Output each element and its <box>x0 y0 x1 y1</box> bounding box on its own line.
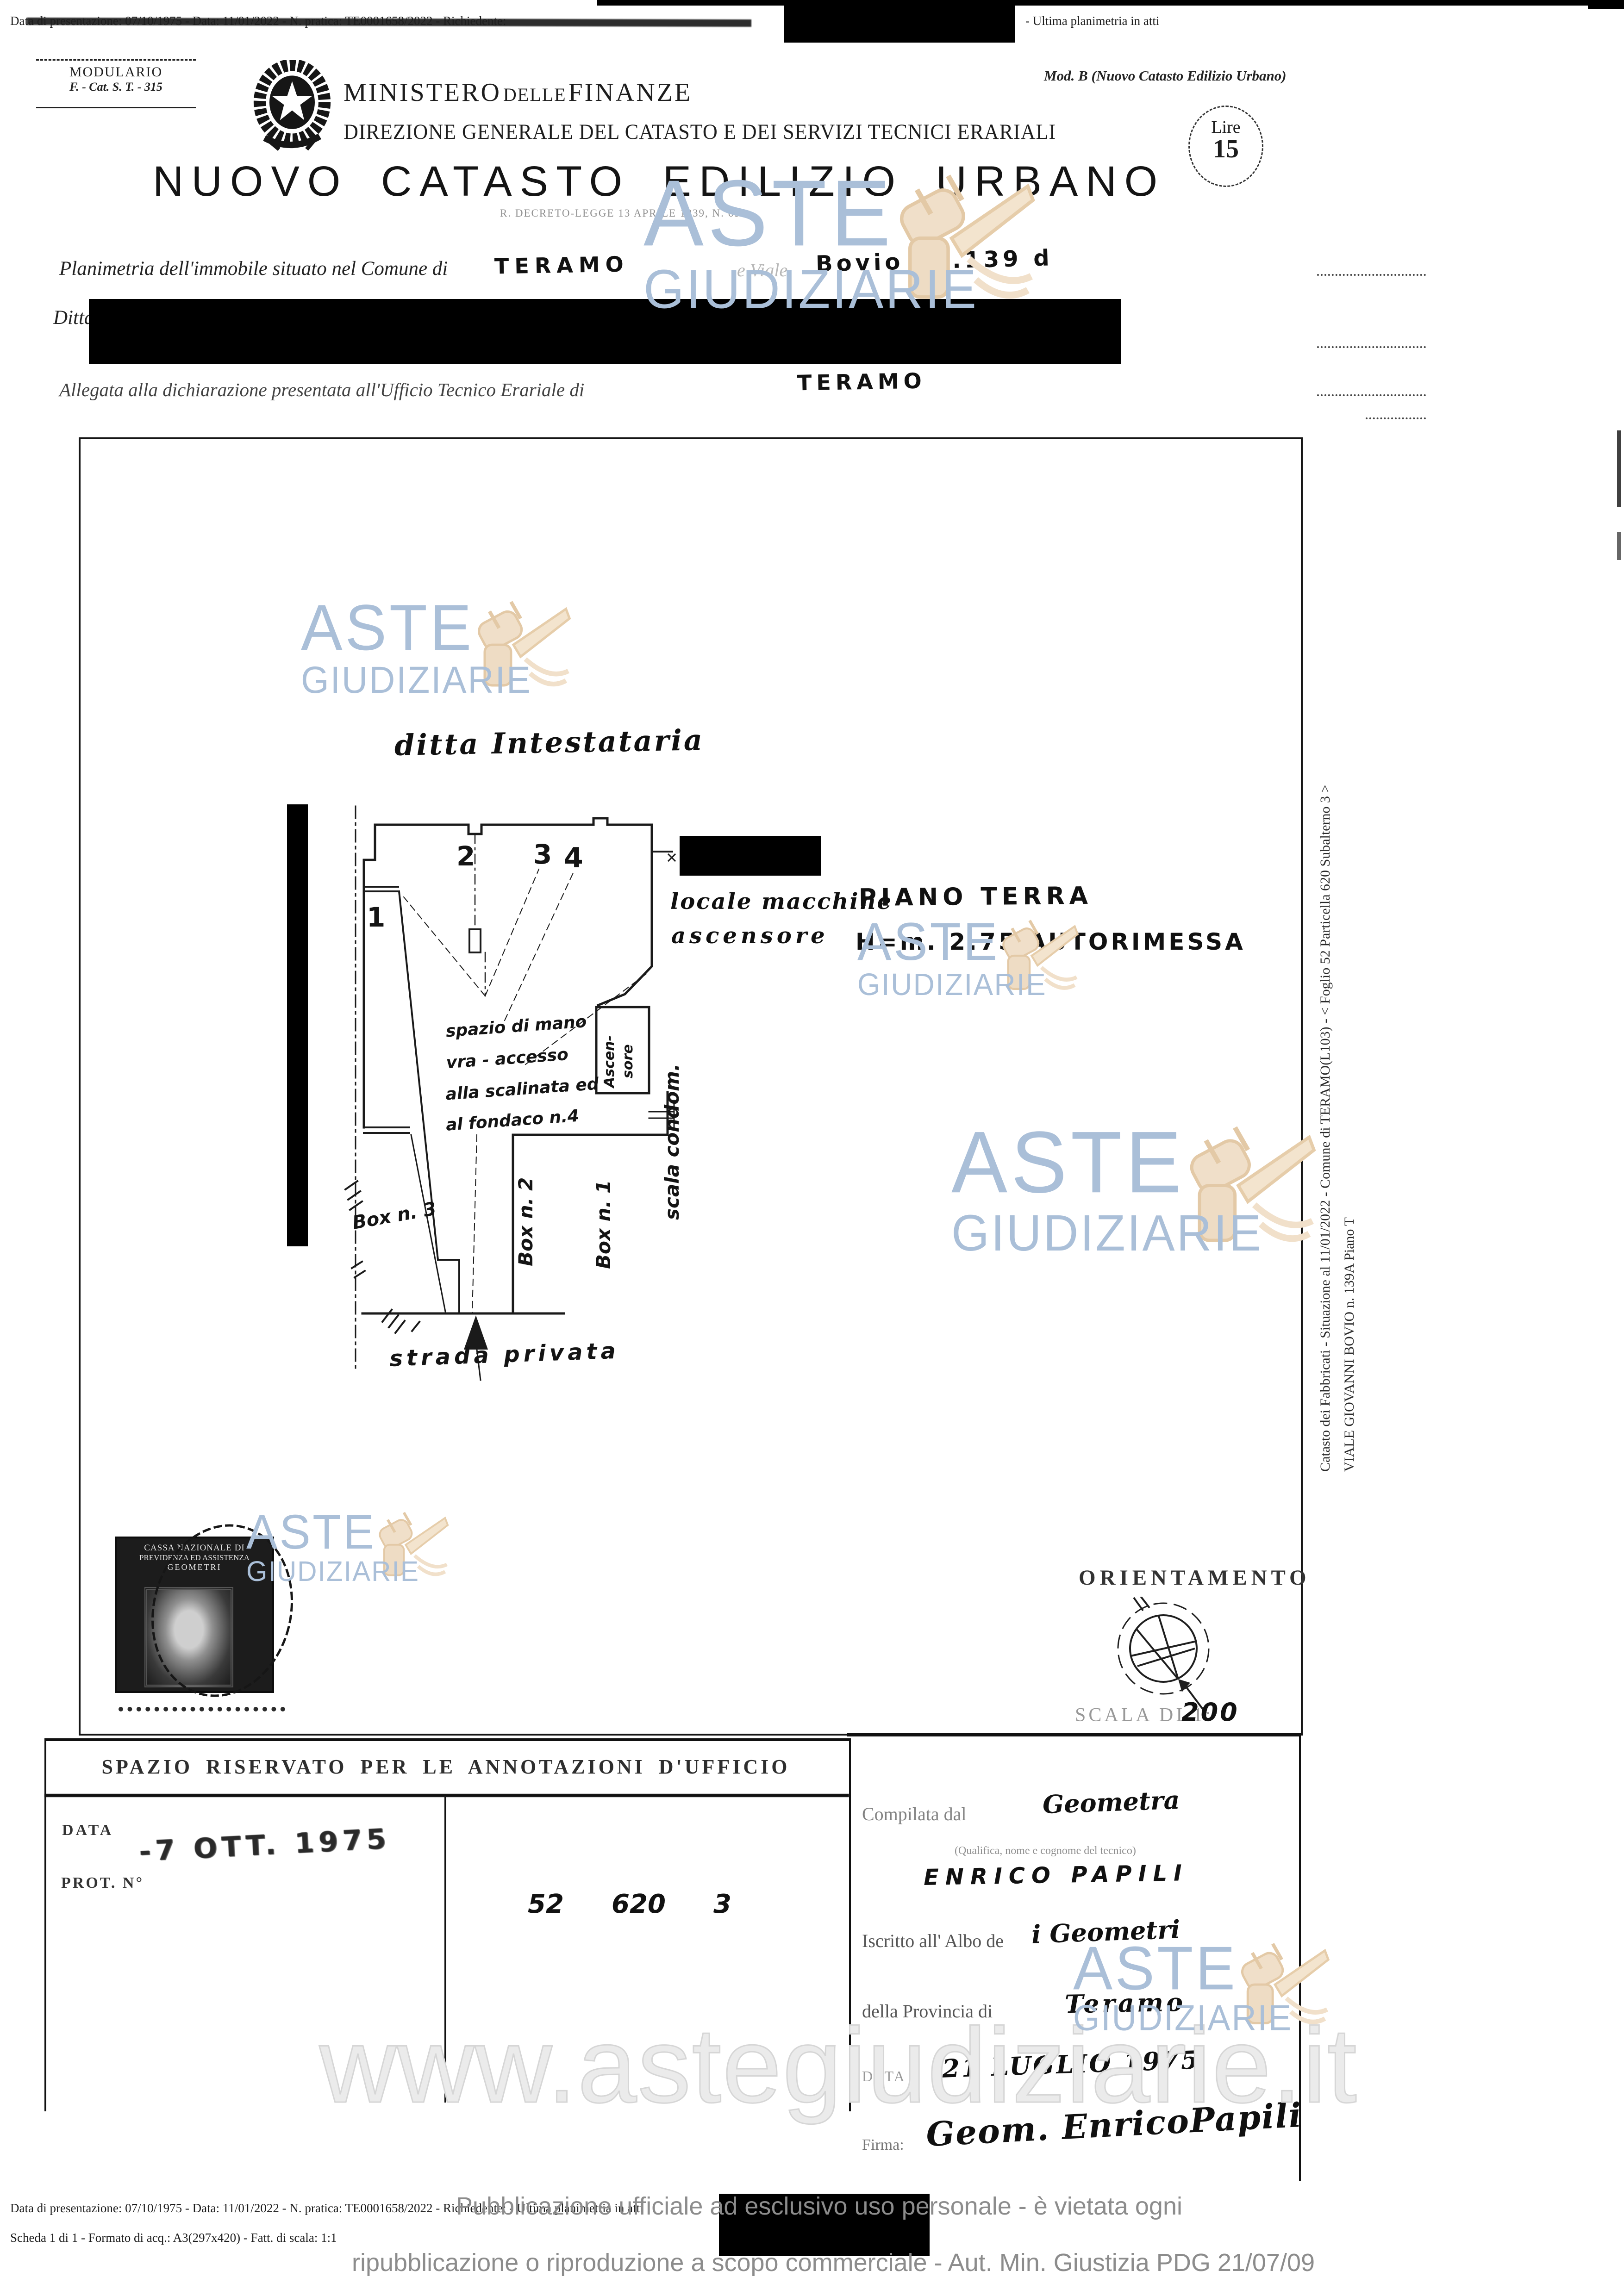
dotted-leader <box>1317 346 1426 348</box>
piano-terra-note-line2: H=m. 2.75 AUTORIMESSA <box>856 928 1246 955</box>
form-line3-value: TERAMO <box>797 368 927 396</box>
compilata-value: Geometra <box>1042 1785 1180 1819</box>
annotations-data-label: DATA <box>62 1822 113 1839</box>
top-info-prefix: Data di presentazione: 07/10/1975 - Data… <box>10 14 506 28</box>
form-line3-label: Allegata alla dichiarazione presentata a… <box>59 379 584 401</box>
footer-notice-line2: ripubblicazione o riproduzione a scopo c… <box>352 2248 1315 2277</box>
form-line1-label2: e Viale <box>737 259 787 281</box>
scan-artifact <box>597 0 1624 6</box>
modulario-box: MODULARIO F. - Cat. S. T. - 315 <box>36 59 196 108</box>
top-redaction-box <box>784 6 1015 43</box>
ascensore-box-label2: sore <box>620 1044 636 1078</box>
modulario-line1: MODULARIO <box>36 64 196 80</box>
footer-notice-line1: Pubblicazione ufficiale ad esclusivo uso… <box>456 2192 1182 2221</box>
ditta-redaction-box <box>89 299 1121 364</box>
spazio-note-line2: vra - accesso <box>445 1045 569 1072</box>
modulario-line2: F. - Cat. S. T. - 315 <box>36 80 196 94</box>
annotations-numbers: 52 620 3 <box>528 1889 731 1919</box>
scala-value: 200 <box>1181 1698 1239 1727</box>
box2-label: Box n. 2 <box>514 1177 537 1266</box>
orientamento-title: ORIENTAMENTO <box>1079 1565 1311 1590</box>
box3-label: Box n. 3 <box>351 1198 438 1234</box>
direzione-title: DIREZIONE GENERALE DEL CATASTO E DEI SER… <box>344 119 1056 144</box>
margin-address-line: VIALE GIOVANNI BOVIO n. 139A Piano T <box>1342 1213 1357 1472</box>
scan-artifact <box>1617 430 1621 507</box>
scan-artifact <box>1617 532 1621 560</box>
mod-b-label: Mod. B (Nuovo Catasto Edilizio Urbano) <box>1044 68 1287 84</box>
ascensore-box-label1: Ascen- <box>601 1035 618 1089</box>
stamp-cancellation-oval <box>139 1513 306 1708</box>
spazio-note-line1: spazio di mano <box>445 1012 587 1041</box>
annotations-prot-label: PROT. N° <box>61 1874 144 1892</box>
ministry-word3: FINANZE <box>568 78 693 107</box>
box1-label: Box n. 1 <box>592 1180 615 1269</box>
ditta-intestataria-note: ditta Intestataria <box>394 723 704 762</box>
scala-condominiale-label: scala condom. <box>661 1064 683 1220</box>
spazio-note-line4: al fondaco n.4 <box>445 1107 580 1135</box>
italy-emblem-icon <box>250 60 331 155</box>
lire-value: 15 <box>1190 137 1262 161</box>
room-label-3: 3 <box>533 839 552 870</box>
room-label-1: 1 <box>367 902 385 933</box>
room-label-4: 4 <box>564 842 583 874</box>
locale-macchine-note-line2: ascensore <box>671 923 829 949</box>
strada-privata-label: strada privata <box>389 1338 619 1372</box>
dotted-leader <box>1317 394 1426 396</box>
scan-artifact <box>1588 0 1624 9</box>
watermark-url: www.astegiudiziarie.it <box>319 2004 1358 2127</box>
subalterno-number: 3 <box>713 1889 731 1919</box>
stamp-perforation <box>119 1707 285 1711</box>
piano-terra-note-line1: PIANO TERRA <box>859 882 1093 912</box>
form-line1-label: Planimetria dell'immobile situato nel Co… <box>59 257 448 280</box>
particella-number: 620 <box>612 1889 666 1919</box>
spazio-note-line3: alla scalinata ed <box>445 1075 600 1104</box>
floor-plan-drawing: 2 3 4 1 spazio di mano vra - accesso all… <box>259 787 722 1388</box>
ministry-title: MINISTERO DELLE FINANZE <box>344 78 692 107</box>
compilata-label: Compilata dal <box>862 1803 967 1825</box>
page-title: NUOVO CATASTO EDILIZIO URBANO <box>153 157 1165 206</box>
annotations-header: SPAZIO RISERVATO PER LE ANNOTAZIONI D'UF… <box>44 1755 847 1779</box>
form-line1-value2: Bovio N°.139 d <box>815 245 1053 277</box>
document-page: Data di presentazione: 07/10/1975 - Data… <box>0 0 1624 2296</box>
room-label-2: 2 <box>456 840 475 872</box>
margin-catasto-line: Catasto dei Fabbricati - Situazione al 1… <box>1318 685 1333 1472</box>
ministry-word1: MINISTERO <box>344 78 501 107</box>
albo-label: Iscritto all' Albo de <box>862 1930 1004 1952</box>
annotations-header-rule <box>44 1794 849 1797</box>
foglio-number: 52 <box>528 1889 564 1919</box>
form-line1-value: TERAMO <box>494 251 630 279</box>
dotted-leader <box>1366 417 1426 419</box>
albo-value: i Geometri <box>1031 1914 1181 1949</box>
footer-line2: Scheda 1 di 1 - Formato di acq.: A3(297x… <box>10 2231 337 2245</box>
compiler-name: ENRICO PAPILI <box>924 1860 1189 1891</box>
firma-label: Firma: <box>862 2136 904 2154</box>
top-info-suffix: - Ultima planimetria in atti <box>1025 14 1159 28</box>
dotted-leader <box>1317 274 1426 276</box>
title-subtitle: R. DECRETO-LEGGE 13 APRILE 1939, N. 652 <box>500 207 747 219</box>
compiler-small-note: (Qualifica, nome e cognome del tecnico) <box>955 1845 1136 1857</box>
ministry-word2: DELLE <box>503 84 567 105</box>
ditta-label: Ditta <box>53 306 94 329</box>
lire-stamp: Lire 15 <box>1188 106 1263 187</box>
